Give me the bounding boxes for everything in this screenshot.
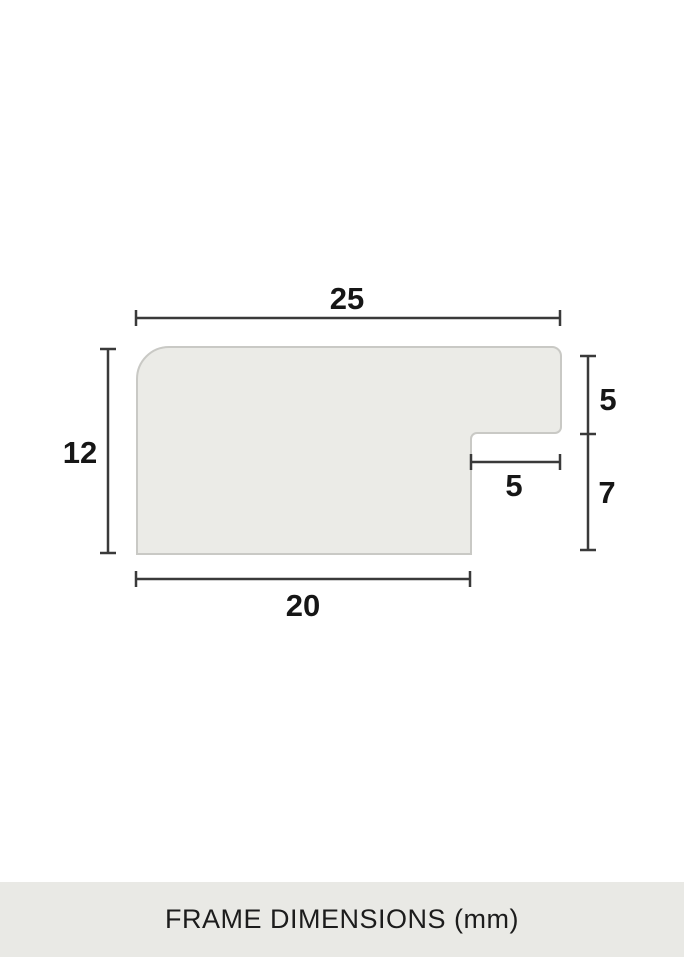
dimension-left-height: 12 [63,349,116,553]
frame-profile-shape [137,347,561,554]
dimension-bottom-width: 20 [136,571,470,623]
dimension-label-rabbet-width: 5 [505,468,522,503]
frame-profile-diagram: 25 12 5 7 5 20 [0,0,684,882]
dimension-label-bottom-width: 20 [286,588,320,623]
caption-text: FRAME DIMENSIONS (mm) [165,904,519,935]
dimension-label-right-upper-depth: 5 [599,382,616,417]
caption-bar: FRAME DIMENSIONS (mm) [0,882,684,957]
dimension-right-depths: 5 7 [580,356,617,550]
dimension-label-left-height: 12 [63,435,97,470]
frame-dimensions-page: 25 12 5 7 5 20 [0,0,684,957]
dimension-label-top-width: 25 [330,281,364,316]
dimension-rabbet-width: 5 [471,454,560,503]
dimension-top-width: 25 [136,281,560,326]
dimension-label-right-lower-depth: 7 [598,475,615,510]
